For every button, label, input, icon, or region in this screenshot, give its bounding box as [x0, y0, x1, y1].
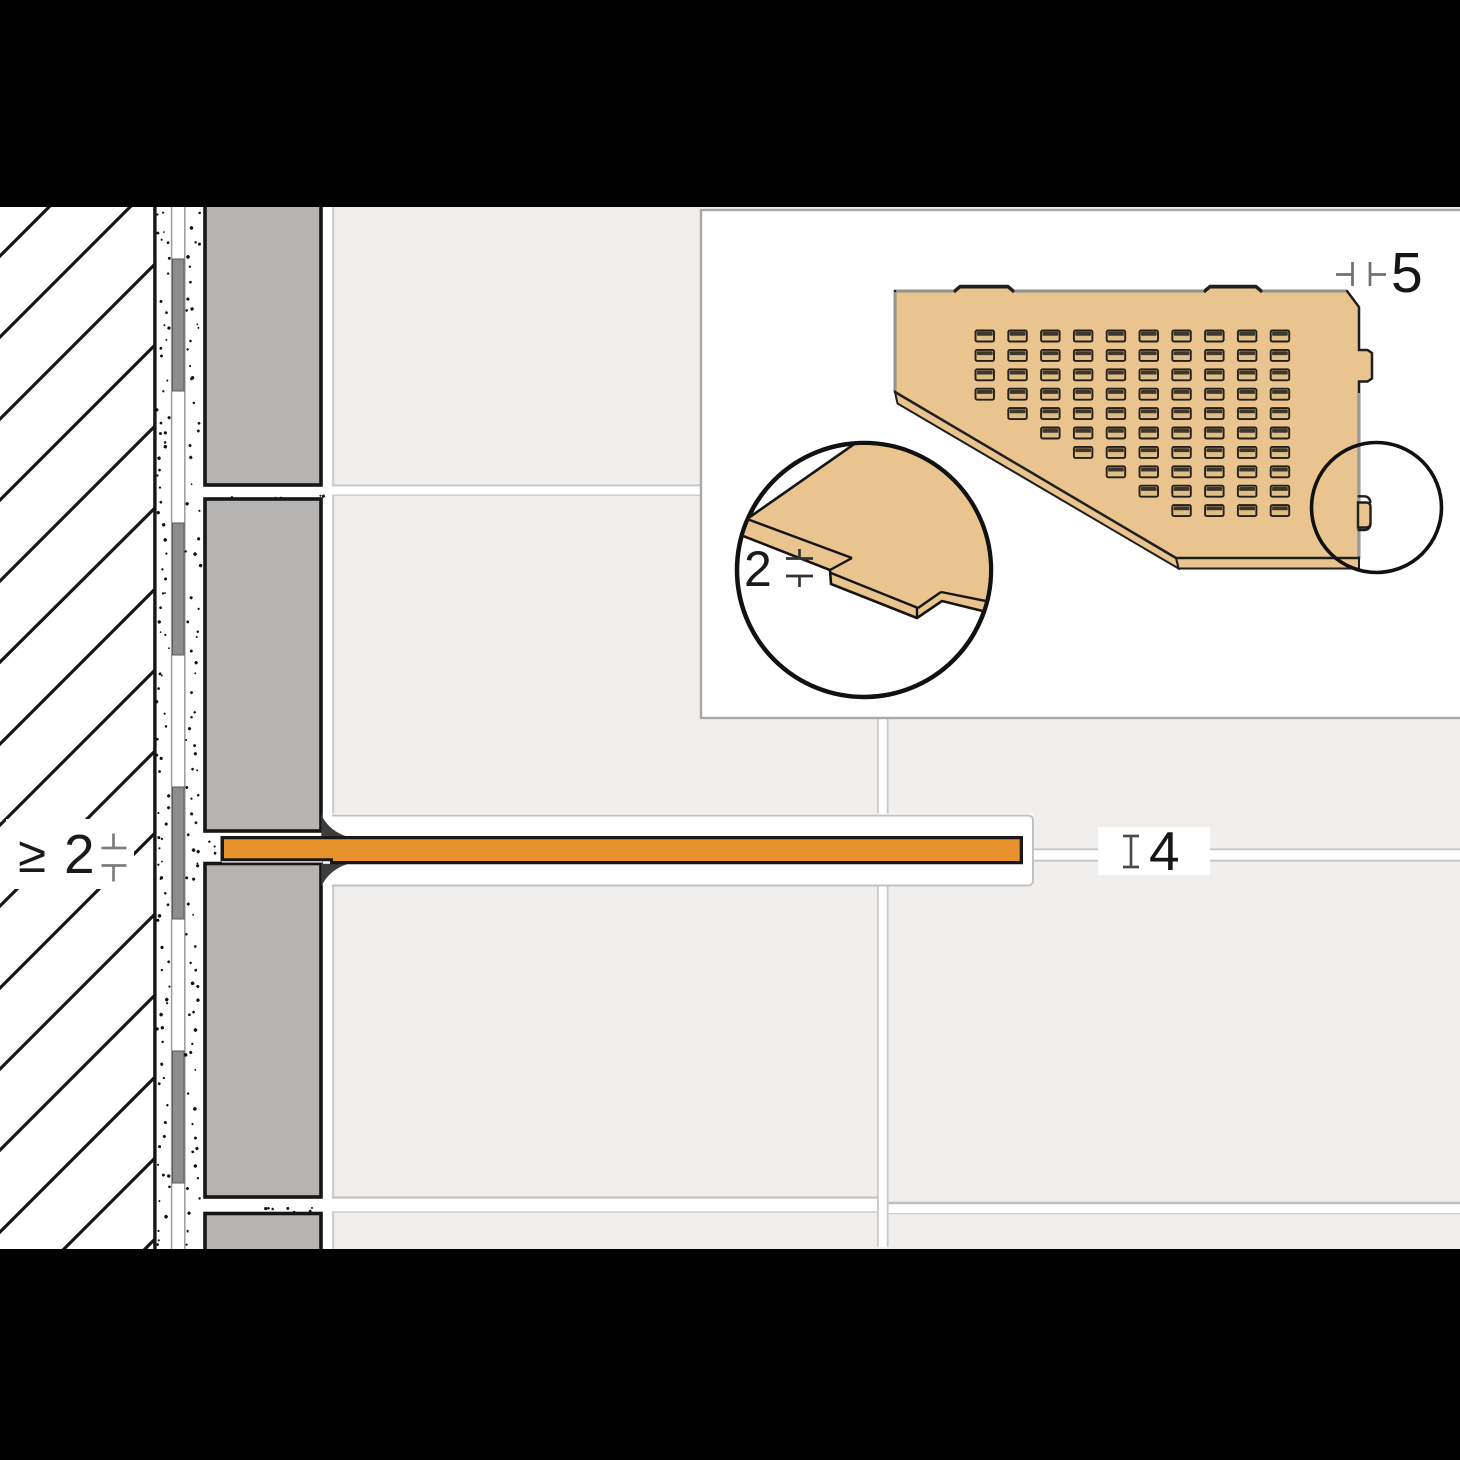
- svg-text:4: 4: [1149, 820, 1180, 882]
- svg-text:2: 2: [64, 823, 95, 885]
- svg-text:5: 5: [1391, 241, 1423, 305]
- svg-text:2: 2: [744, 541, 772, 597]
- svg-text:≥: ≥: [18, 826, 46, 883]
